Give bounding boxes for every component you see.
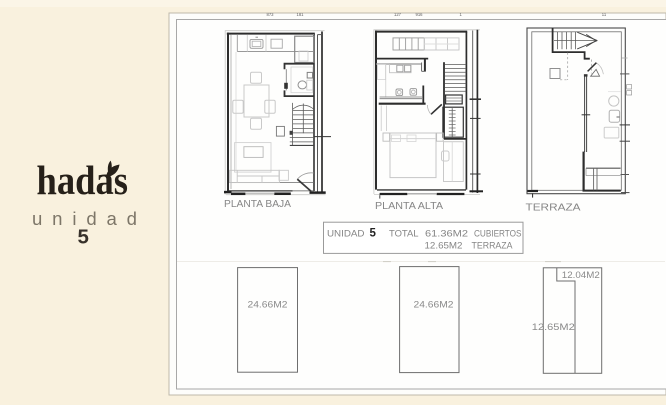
svg-text:TOTAL: TOTAL — [389, 229, 419, 239]
svg-text:24.66M2: 24.66M2 — [248, 299, 288, 310]
svg-text:TERRAZA: TERRAZA — [526, 202, 581, 213]
svg-text:CUBIERTOS: CUBIERTOS — [474, 229, 522, 239]
svg-text:12.65M2: 12.65M2 — [425, 241, 463, 251]
svg-text:UNIDAD: UNIDAD — [327, 229, 365, 239]
svg-text:TERRAZA: TERRAZA — [472, 241, 514, 251]
svg-text:24.66M2: 24.66M2 — [414, 299, 454, 310]
svg-text:61.36M2: 61.36M2 — [425, 229, 468, 239]
svg-text:12.04M2: 12.04M2 — [562, 270, 600, 281]
svg-text:hadas: hadas — [37, 157, 129, 203]
svg-text:PLANTA BAJA: PLANTA BAJA — [224, 199, 291, 210]
svg-text:5: 5 — [77, 226, 88, 249]
svg-text:181: 181 — [297, 12, 305, 17]
svg-text:873: 873 — [267, 12, 275, 17]
svg-text:PLANTA ALTA: PLANTA ALTA — [375, 201, 443, 212]
svg-text:11: 11 — [602, 12, 607, 17]
svg-text:916: 916 — [416, 12, 424, 17]
svg-text:127: 127 — [394, 12, 402, 17]
svg-text:5: 5 — [370, 228, 377, 240]
svg-text:12.65M2: 12.65M2 — [532, 322, 575, 333]
